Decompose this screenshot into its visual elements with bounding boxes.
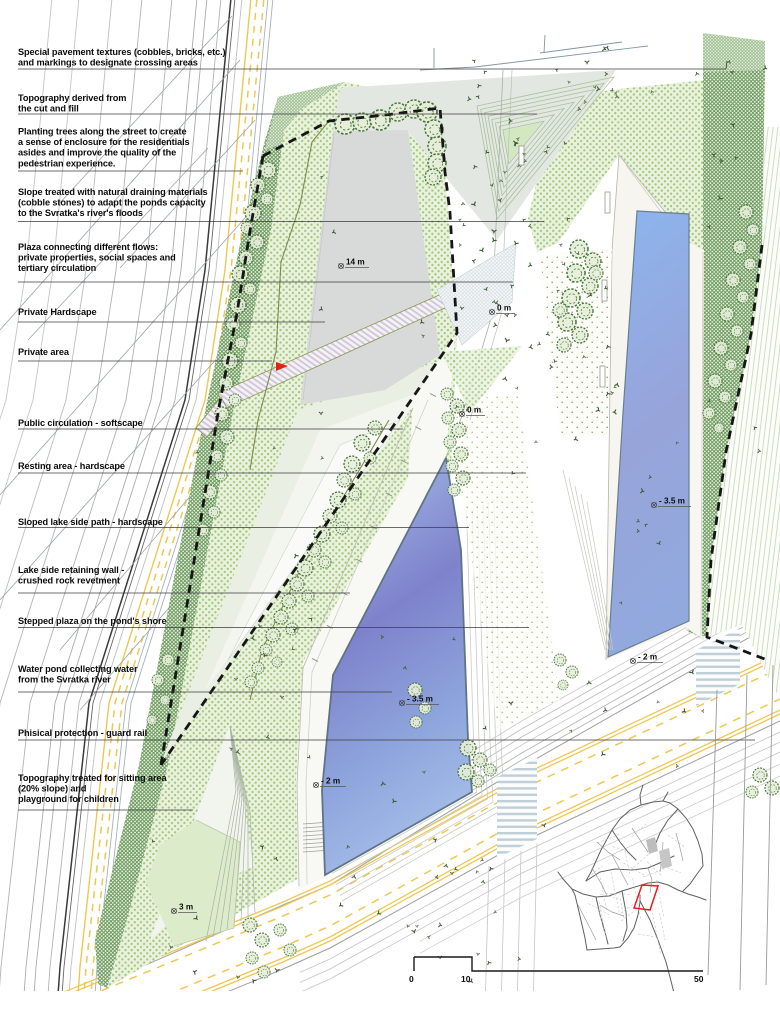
svg-text:- 3.5 m: - 3.5 m [407, 695, 433, 704]
svg-text:Private Hardscape: Private Hardscape [18, 307, 96, 317]
svg-text:Topography treated for sitting: Topography treated for sitting area [18, 773, 167, 783]
svg-text:0 m: 0 m [497, 304, 511, 313]
svg-text:Lake side retaining wall -: Lake side retaining wall - [18, 565, 124, 575]
svg-text:pedestrian experience.: pedestrian experience. [18, 158, 115, 168]
svg-text:- 3.5 m: - 3.5 m [659, 497, 685, 506]
svg-text:Private area: Private area [18, 347, 70, 357]
svg-text:playground for children: playground for children [18, 794, 119, 804]
svg-text:Special pavement textures (cob: Special pavement textures (cobbles, bric… [18, 47, 226, 57]
svg-text:10: 10 [461, 974, 471, 984]
svg-text:Planting trees along the stree: Planting trees along the street to creat… [18, 127, 186, 137]
svg-text:to the Svratka's river's flood: to the Svratka's river's floods [18, 208, 143, 218]
svg-text:Sloped lake side path - hardsc: Sloped lake side path - hardscape [18, 517, 163, 527]
svg-text:(20% slope) and: (20% slope) and [18, 784, 86, 794]
svg-text:asides and improve the quality: asides and improve the quality of the [18, 148, 176, 158]
svg-text:Topography derived from: Topography derived from [18, 93, 126, 103]
svg-text:private properties, social spa: private properties, social spaces and [18, 253, 176, 263]
svg-text:from the Svratka river: from the Svratka river [18, 675, 111, 685]
svg-text:Resting area - hardscape: Resting area - hardscape [18, 461, 125, 471]
svg-text:(cobble stones) to adapt the p: (cobble stones) to adapt the ponds capac… [18, 198, 207, 208]
svg-text:Phisical protection - guard ra: Phisical protection - guard rail [18, 728, 147, 738]
svg-text:Plaza connecting different flo: Plaza connecting different flows: [18, 242, 158, 252]
svg-text:Public circulation - softscape: Public circulation - softscape [18, 418, 143, 428]
svg-text:Water pond collecting water: Water pond collecting water [18, 664, 138, 674]
svg-text:- 2 m: - 2 m [321, 777, 340, 786]
svg-text:14 m: 14 m [346, 258, 365, 267]
svg-text:Slope treated with natural dra: Slope treated with natural draining mate… [18, 187, 208, 197]
svg-text:0: 0 [409, 974, 414, 984]
svg-text:tertiary circulation: tertiary circulation [18, 263, 97, 273]
svg-text:crushed rock revetment: crushed rock revetment [18, 576, 120, 586]
svg-text:Stepped plaza on the pond's sh: Stepped plaza on the pond's shore [18, 616, 166, 626]
svg-text:a sense of enclosure for the r: a sense of enclosure for the residential… [18, 137, 190, 147]
svg-text:- 2 m: - 2 m [638, 653, 657, 662]
svg-text:0 m: 0 m [467, 406, 481, 415]
svg-text:and markings to designate cros: and markings to designate crossing areas [18, 58, 198, 68]
svg-text:50: 50 [694, 974, 704, 984]
svg-text:the cut and fill: the cut and fill [18, 104, 79, 114]
svg-text:3 m: 3 m [179, 903, 193, 912]
